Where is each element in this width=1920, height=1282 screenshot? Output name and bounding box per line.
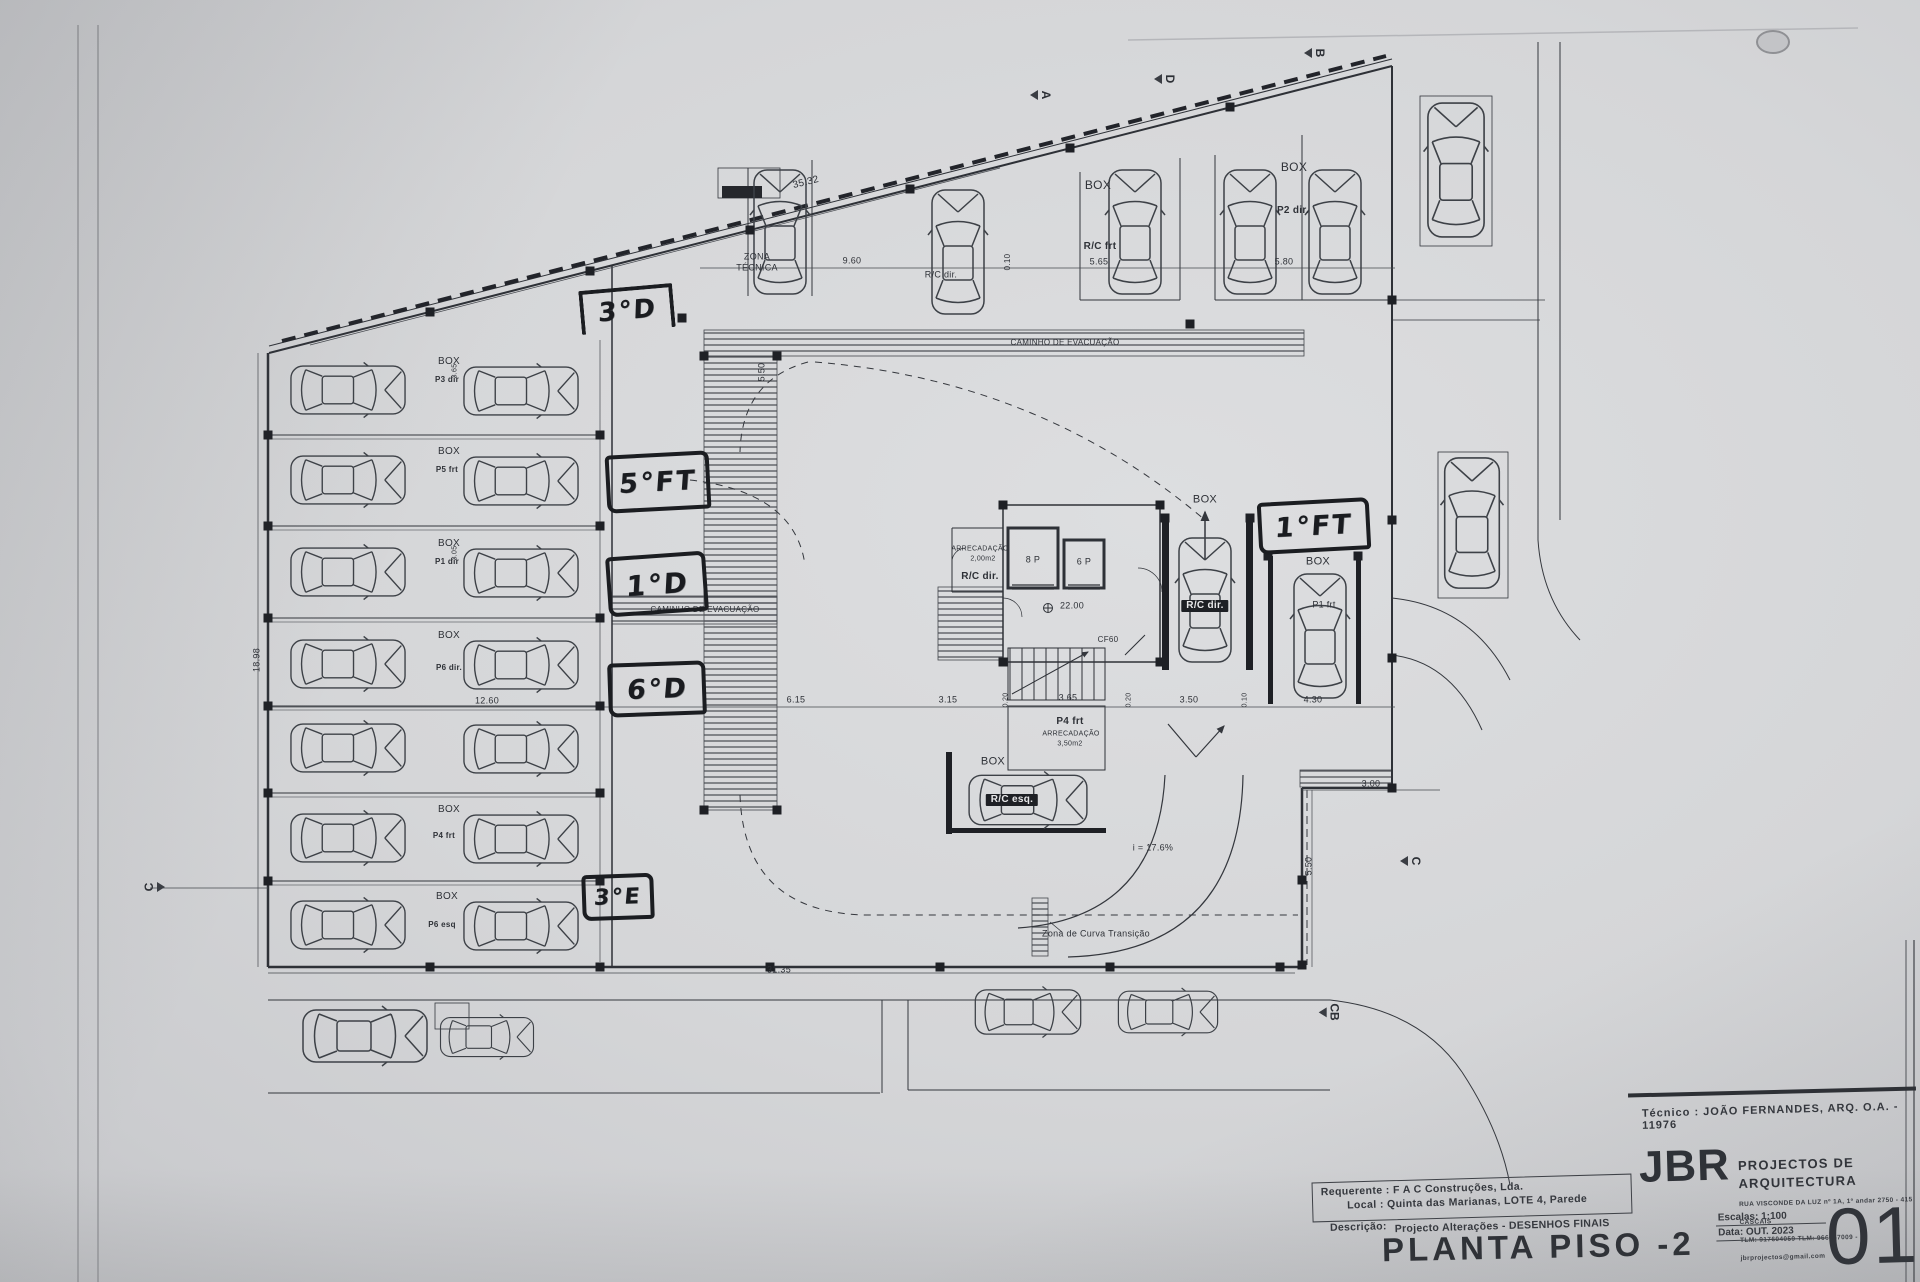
- photographed-floor-plan-sheet: ZONATÉCNICA35.329.600.105.655.80BOXR/C f…: [0, 0, 1920, 1282]
- firm-logo-initials: JBR: [1638, 1145, 1730, 1187]
- drawing-title: PLANTA PISO -2: [1382, 1225, 1695, 1270]
- sheet-number: 01: [1825, 1195, 1920, 1277]
- date-value: Data: OUT. 2023: [1716, 1223, 1826, 1241]
- scale-date-box: Escalas: 1:100 Data: OUT. 2023: [1716, 1208, 1827, 1241]
- description-label: Descrição:: [1330, 1220, 1387, 1237]
- architect-credit: Técnico : JOÃO FERNANDES, ARQ. O.A. - 11…: [1642, 1100, 1920, 1132]
- title-block: Técnico : JOÃO FERNANDES, ARQ. O.A. - 11…: [0, 0, 1920, 1282]
- firm-name: PROJECTOS DE ARQUITECTURA: [1738, 1155, 1857, 1191]
- title-block-divider: [1628, 1086, 1916, 1097]
